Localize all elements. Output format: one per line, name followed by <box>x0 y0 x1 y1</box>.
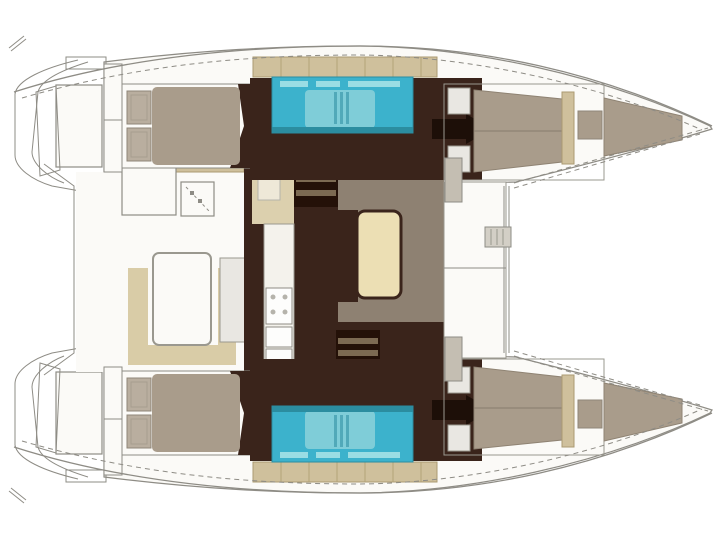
salon <box>244 150 444 377</box>
bow-step-cushion <box>578 400 602 428</box>
aft-cockpit <box>76 150 262 372</box>
bow-step-cushion <box>578 111 602 139</box>
coachroof-cushion-strip <box>253 462 437 482</box>
bathroom-wet-room <box>272 406 413 462</box>
dining-area <box>338 176 444 322</box>
cockpit-table <box>153 253 211 345</box>
settee-floor-gap <box>338 210 358 302</box>
dining-table <box>357 211 401 298</box>
anchor-windlass <box>485 227 511 247</box>
foredeck-seat <box>445 337 462 381</box>
forward-cabin-locker <box>448 425 470 451</box>
galley-oven <box>266 327 292 347</box>
catamaran-floorplan <box>0 0 720 539</box>
hull-entry-steps <box>104 367 122 475</box>
swim-step <box>56 372 102 454</box>
foredeck <box>444 158 511 381</box>
helm-seat <box>122 167 176 215</box>
coachroof-cushion-strip <box>253 57 437 77</box>
swim-step <box>56 85 102 167</box>
cockpit-side-unit <box>220 258 246 342</box>
hull-entry-steps <box>104 64 122 172</box>
catamaran-floorplan-image <box>0 0 720 539</box>
forward-cabin-locker <box>448 88 470 114</box>
foredeck-seat <box>445 158 462 202</box>
aft-berth-mattress <box>152 374 240 452</box>
transom-crossbar-lines <box>44 164 74 375</box>
galley-stove <box>266 288 292 324</box>
aft-berth-mattress <box>152 87 240 165</box>
davit-ticks <box>9 36 26 503</box>
bathroom-wet-room <box>272 77 413 133</box>
starboard-stern-platform <box>15 57 106 191</box>
forward-bulkhead <box>562 375 574 447</box>
helm-access-steps <box>181 182 214 216</box>
forward-bulkhead <box>562 92 574 164</box>
